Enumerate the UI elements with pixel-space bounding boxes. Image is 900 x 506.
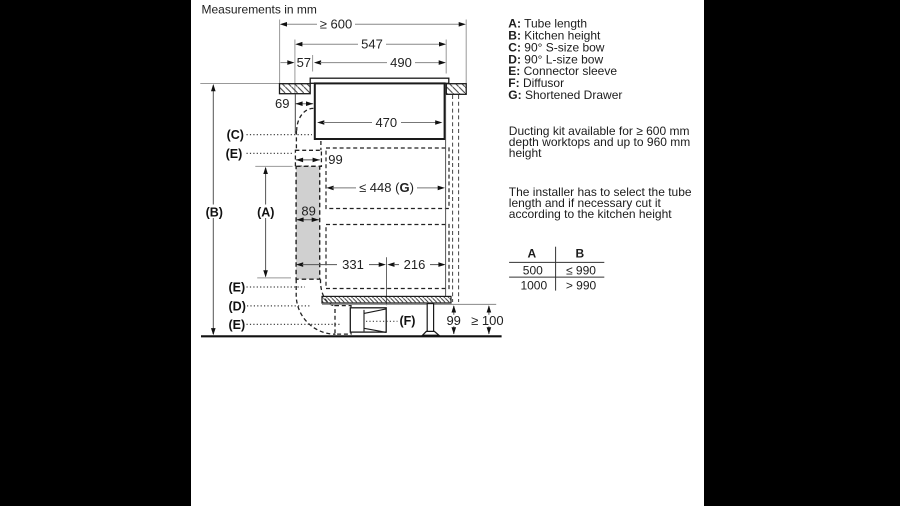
svg-text:(D): (D)	[229, 300, 246, 314]
svg-text:331: 331	[342, 257, 364, 272]
svg-text:69: 69	[275, 96, 289, 111]
svg-text:470: 470	[375, 115, 397, 130]
svg-text:89: 89	[301, 204, 315, 219]
svg-text:500: 500	[523, 264, 543, 278]
svg-text:(A): (A)	[257, 205, 274, 219]
svg-text:(E): (E)	[228, 281, 245, 295]
svg-text:≥ 600: ≥ 600	[320, 17, 352, 32]
svg-text:216: 216	[404, 257, 426, 272]
svg-text:99: 99	[328, 152, 342, 167]
svg-text:≤ 448 (G): ≤ 448 (G)	[359, 180, 414, 195]
svg-text:547: 547	[361, 37, 383, 52]
svg-text:(B): (B)	[206, 205, 223, 219]
svg-text:B: B	[575, 247, 584, 261]
svg-text:height: height	[509, 146, 542, 160]
svg-text:(C): (C)	[227, 128, 244, 142]
svg-text:99: 99	[446, 313, 460, 328]
svg-text:(E): (E)	[226, 147, 243, 161]
svg-text:> 990: > 990	[566, 279, 597, 293]
svg-text:1000: 1000	[520, 279, 547, 293]
svg-text:(F): (F)	[400, 314, 416, 328]
svg-text:57: 57	[297, 55, 311, 70]
svg-text:A: A	[527, 247, 536, 261]
svg-text:≤ 990: ≤ 990	[566, 264, 596, 278]
svg-text:490: 490	[390, 55, 412, 70]
svg-text:according to the kitchen heigh: according to the kitchen height	[509, 207, 672, 221]
svg-text:(E): (E)	[228, 318, 245, 332]
svg-text:G: Shortened Drawer: G: Shortened Drawer	[508, 88, 622, 102]
svg-text:Measurements in mm: Measurements in mm	[202, 3, 317, 17]
svg-text:≥ 100: ≥ 100	[471, 313, 503, 328]
